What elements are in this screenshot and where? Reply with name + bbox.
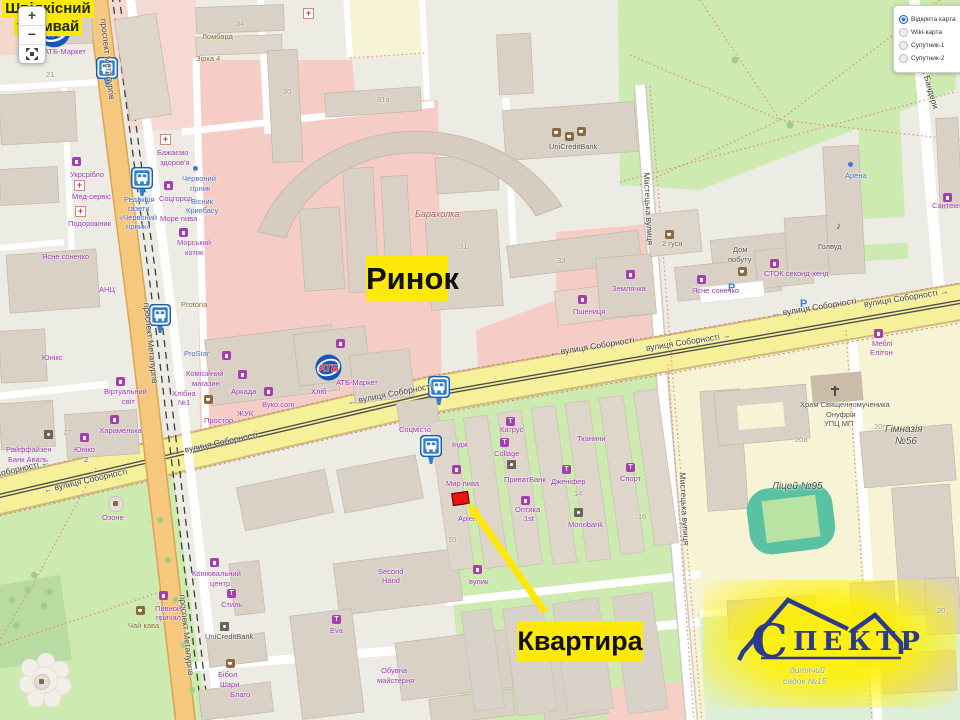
shop-icon [116,377,125,386]
layer-option-satellite-2[interactable]: Супутник-2 [899,54,960,63]
shop-icon [874,329,883,338]
radio-icon [899,54,908,63]
layer-option-label: Wiki-карта [911,29,942,36]
radio-icon [899,41,908,50]
zoom-control: + − [18,6,46,64]
svg-text:АТБ: АТБ [317,363,338,374]
shop-icon [72,157,81,166]
bank-icon [507,460,516,469]
fullscreen-button[interactable] [19,45,45,63]
shop-icon [159,591,168,600]
clothes-shop-icon [562,465,571,474]
poi-dot-icon [193,166,198,171]
shop-icon [626,270,635,279]
zoom-out-button[interactable]: − [19,26,45,45]
clothes-shop-icon [332,615,341,624]
map-screenshot: АТБАТБPP♪ вулиця Соборності ←← вулиця Со… [0,0,960,720]
shop-icon [80,433,89,442]
bank-icon [220,622,229,631]
bank-icon [574,508,583,517]
shop-icon [222,351,231,360]
shop-icon [336,339,345,348]
clothes-shop-icon [626,463,635,472]
shop-icon [164,181,173,190]
fullscreen-icon [26,48,38,60]
shop-icon [179,228,188,237]
shop-icon [521,496,530,505]
shop-icon [578,295,587,304]
shop-icon [473,565,482,574]
fountain-icon [108,496,124,512]
church-cross-icon [834,386,836,396]
layer-option-wiki-map[interactable]: Wiki-карта [899,28,960,37]
music-venue-icon: ♪ [836,222,841,232]
layers-control: Відкрита карта Wiki-карта Супутник-1 Суп… [893,5,960,73]
shop-icon [452,465,461,474]
parking-icon: P [800,299,807,310]
bus-stop-icon [96,57,118,87]
radio-icon [899,28,908,37]
pharmacy-icon [74,180,85,191]
clothes-shop-icon [227,589,236,598]
layer-option-label: Відкрита карта [911,16,956,23]
shop-icon [943,193,952,202]
shop-icon [697,275,706,284]
radio-icon [899,15,908,24]
layer-option-satellite-1[interactable]: Супутник-1 [899,41,960,50]
parking-icon: P [728,283,735,294]
clothes-shop-icon [500,438,509,447]
shop-icon [210,558,219,567]
clothes-shop-icon [506,417,515,426]
pharmacy-icon [160,134,171,145]
cafe-icon [565,132,574,141]
cafe-icon [552,128,561,137]
shop-icon [110,415,119,424]
bank-icon [44,430,53,439]
layer-option-label: Супутник-1 [911,42,945,49]
cafe-icon [204,395,213,404]
cafe-icon [577,127,586,136]
layer-option-label: Супутник-2 [911,55,945,62]
cafe-icon [665,230,674,239]
layer-option-open-map[interactable]: Відкрита карта [899,15,960,24]
shop-icon [770,259,779,268]
fountain-icon [34,674,50,690]
bus-stop-icon [428,376,450,406]
cafe-icon [738,267,747,276]
zoom-in-button[interactable]: + [19,7,45,26]
bus-stop-icon [131,167,153,197]
shop-icon [238,370,247,379]
poi-dot-icon [848,162,853,167]
pharmacy-icon [303,8,314,19]
atb-logo-icon: АТБ [315,354,342,386]
bus-stop-icon [420,435,442,465]
cafe-icon [226,659,235,668]
pharmacy-icon [75,206,86,217]
shop-icon [264,387,273,396]
cafe-icon [136,606,145,615]
map-icons-layer: АТБАТБPP♪ [0,0,960,720]
bus-stop-icon [149,304,171,334]
